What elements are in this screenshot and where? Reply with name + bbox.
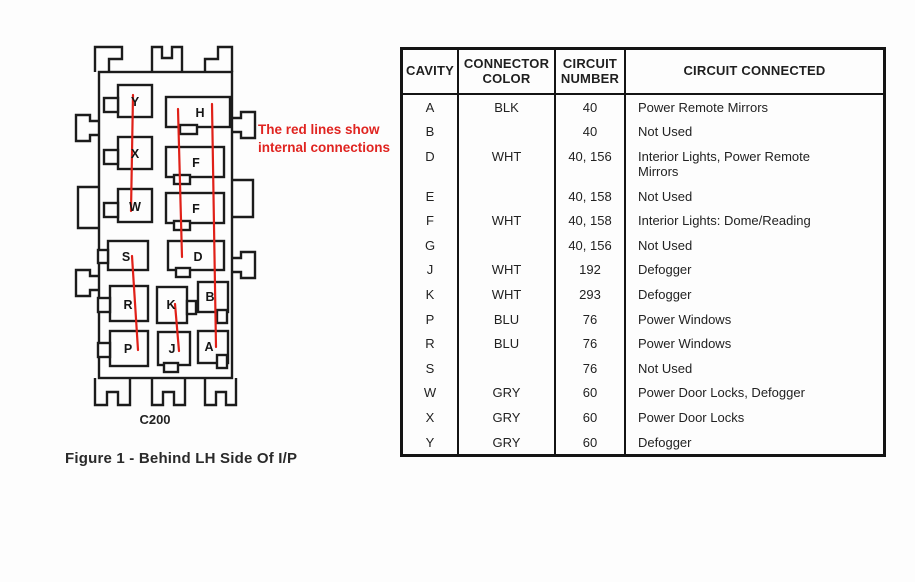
bottom-tab-1	[95, 378, 130, 405]
color-cell	[459, 233, 556, 258]
cavity-B-label: B	[205, 290, 214, 304]
number-cell: 40, 156	[556, 233, 626, 258]
cavity-X-label: X	[131, 147, 140, 161]
header-cavity: CAVITY	[403, 50, 459, 95]
connected-cell: Defogger	[626, 430, 883, 455]
header-connector-color: CONNECTOR COLOR	[459, 50, 556, 95]
cavity-D-label: D	[193, 250, 202, 264]
connected-cell: Not Used	[626, 184, 883, 209]
cavity-R-label: R	[123, 298, 132, 312]
cavity-J-label: J	[169, 342, 176, 356]
number-cell: 60	[556, 430, 626, 455]
connected-cell: Defogger	[626, 258, 883, 283]
connected-cell: Power Windows	[626, 331, 883, 356]
number-cell: 76	[556, 356, 626, 381]
color-cell	[459, 120, 556, 145]
right-tab-2	[232, 180, 253, 217]
connected-cell: Interior Lights: Dome/Reading	[626, 208, 883, 233]
cavity-P-label: P	[124, 342, 132, 356]
connected-cell: Not Used	[626, 356, 883, 381]
cavity-W-label: W	[129, 200, 141, 214]
color-cell: BLK	[459, 95, 556, 120]
connected-cell: Not Used	[626, 233, 883, 258]
cavity-cell: D	[403, 144, 459, 184]
cavity-cell: G	[403, 233, 459, 258]
connected-cell: Not Used	[626, 120, 883, 145]
number-cell: 40, 156	[556, 144, 626, 184]
color-cell	[459, 356, 556, 381]
number-cell: 40, 158	[556, 208, 626, 233]
connector-id-label: C200	[100, 412, 210, 427]
cavity-K-label: K	[166, 298, 175, 312]
right-tab-1	[232, 112, 255, 138]
color-cell: GRY	[459, 381, 556, 406]
number-cell: 192	[556, 258, 626, 283]
color-cell: WHT	[459, 144, 556, 184]
number-cell: 60	[556, 381, 626, 406]
cavity-cell: A	[403, 95, 459, 120]
cavity-cell: R	[403, 331, 459, 356]
cavity-cell: K	[403, 282, 459, 307]
red-lines-annotation: The red lines show internal connections	[258, 121, 390, 157]
cavity-Y-label: Y	[131, 95, 140, 109]
top-tab-3	[205, 47, 232, 72]
header-circuit-connected: CIRCUIT CONNECTED	[626, 50, 883, 95]
color-cell: WHT	[459, 258, 556, 283]
header-circuit-number: CIRCUIT NUMBER	[556, 50, 626, 95]
number-cell: 40	[556, 120, 626, 145]
cavity-S-label: S	[122, 250, 130, 264]
number-cell: 293	[556, 282, 626, 307]
cavity-F2-label: F	[192, 202, 200, 216]
cavity-X	[104, 137, 152, 169]
cavity-W	[104, 189, 152, 222]
cavity-cell: E	[403, 184, 459, 209]
top-tab-2	[152, 47, 182, 72]
color-cell: GRY	[459, 405, 556, 430]
cavity-cell: X	[403, 405, 459, 430]
figure-caption: Figure 1 - Behind LH Side Of I/P	[65, 450, 297, 467]
number-cell: 40, 158	[556, 184, 626, 209]
number-cell: 40	[556, 95, 626, 120]
color-cell: BLU	[459, 307, 556, 332]
left-tab-2	[78, 187, 99, 228]
cavity-Y	[104, 85, 152, 117]
cavity-cell: F	[403, 208, 459, 233]
connector-table: CAVITY CONNECTOR COLOR CIRCUIT NUMBER CI…	[400, 47, 886, 457]
cavity-A-label: A	[204, 340, 213, 354]
color-cell: BLU	[459, 331, 556, 356]
cavity-H-label: H	[195, 106, 204, 120]
connector-diagram: Y H X F W F S D R K B P J A	[60, 25, 295, 410]
color-cell: WHT	[459, 282, 556, 307]
cavity-cell: B	[403, 120, 459, 145]
top-tab-1	[95, 47, 122, 72]
connected-cell: Power Windows	[626, 307, 883, 332]
connected-cell: Defogger	[626, 282, 883, 307]
color-cell: WHT	[459, 208, 556, 233]
cavity-cell: P	[403, 307, 459, 332]
cavity-cell: W	[403, 381, 459, 406]
left-tab-3	[76, 270, 99, 296]
connected-cell: Power Remote Mirrors	[626, 95, 883, 120]
number-cell: 76	[556, 331, 626, 356]
connected-cell: Power Door Locks, Defogger	[626, 381, 883, 406]
left-tab-1	[76, 115, 99, 141]
cavity-cell: J	[403, 258, 459, 283]
bottom-tab-2	[152, 378, 185, 405]
color-cell: GRY	[459, 430, 556, 455]
connected-cell: Power Door Locks	[626, 405, 883, 430]
connected-cell: Interior Lights, Power Remote Mirrors	[626, 144, 883, 184]
number-cell: 76	[556, 307, 626, 332]
number-cell: 60	[556, 405, 626, 430]
color-cell	[459, 184, 556, 209]
cavity-cell: Y	[403, 430, 459, 455]
right-tab-3	[232, 252, 255, 278]
cavity-cell: S	[403, 356, 459, 381]
cavity-F1-label: F	[192, 156, 200, 170]
bottom-tab-3	[205, 378, 236, 405]
